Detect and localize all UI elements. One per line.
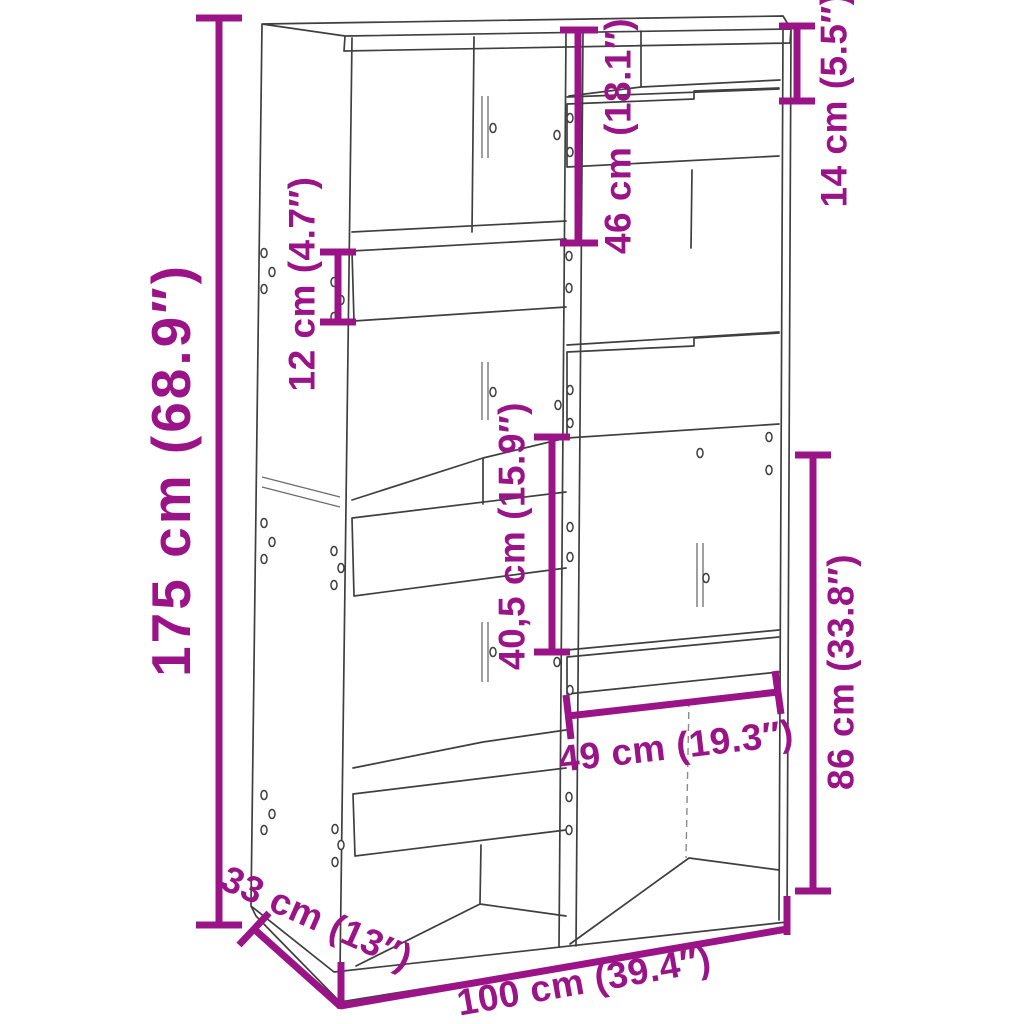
dim-label-board-height: 12 cm (4.7″)	[282, 177, 323, 392]
dim-line-12	[320, 252, 356, 322]
dim-label-compartment-width: 49 cm (19.3″)	[556, 712, 795, 779]
dim-label-top-right-gap: 14 cm (5.5″)	[814, 0, 855, 208]
dim-line-14	[779, 26, 815, 101]
dim-label-height: 175 cm (68.9″)	[140, 263, 202, 677]
dimension-labels: 175 cm (68.9″) 46 cm (18.1″) 14 cm (5.5″…	[140, 0, 862, 1024]
diagram-canvas: 175 cm (68.9″) 46 cm (18.1″) 14 cm (5.5″…	[0, 0, 1024, 1024]
dim-label-middle-compartment: 40,5 cm (15.9″)	[492, 402, 533, 670]
dim-label-width: 100 cm (39.4″)	[454, 938, 714, 1023]
dim-line-height-175	[196, 18, 242, 925]
side-panel-seam	[262, 477, 340, 507]
dim-label-lower-section: 86 cm (33.8″)	[821, 554, 862, 790]
right-column-slot	[697, 543, 703, 607]
left-column-structure	[352, 37, 566, 966]
dim-line-40-5	[534, 437, 570, 652]
dim-label-depth: 33 cm (13″)	[215, 858, 418, 979]
left-column-slots	[482, 96, 488, 682]
product-dimension-diagram: 175 cm (68.9″) 46 cm (18.1″) 14 cm (5.5″…	[0, 0, 1024, 1024]
dim-label-upper-compartment: 46 cm (18.1″)	[598, 18, 639, 254]
